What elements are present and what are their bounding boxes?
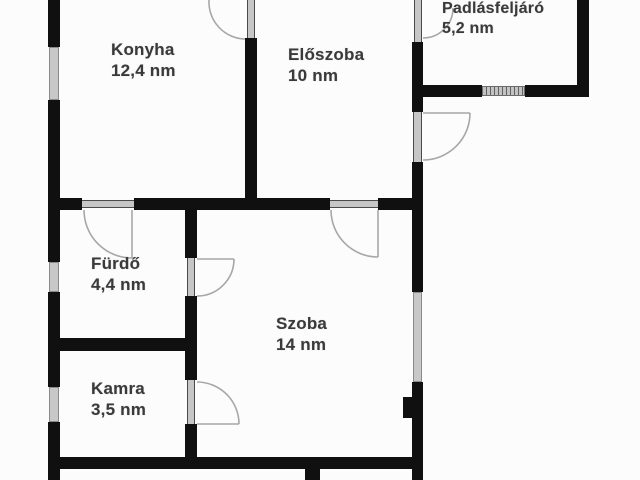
room-label-kamra: Kamra 3,5 nm — [91, 378, 146, 420]
room-label-padlasfeljaro: Padlásfeljáró 5,2 nm — [442, 0, 544, 39]
door-arc-furdo-szoba — [197, 259, 234, 296]
window-furdo-left — [49, 262, 59, 292]
doorway-entrance — [413, 112, 422, 162]
room-label-szoba: Szoba 14 nm — [276, 313, 327, 355]
floor-plan: Konyha 12,4 nm Előszoba 10 nm Padlásfelj… — [0, 0, 640, 480]
room-name-kamra: Kamra — [91, 378, 146, 399]
doorway-szoba — [330, 200, 378, 208]
wall-padlas-right — [577, 0, 589, 97]
room-label-furdo: Fürdő 4,4 nm — [91, 253, 146, 295]
window-szoba-right — [413, 292, 422, 382]
room-area-padlasfeljaro: 5,2 nm — [442, 19, 544, 39]
room-name-padlasfeljaro: Padlásfeljáró — [442, 0, 544, 19]
wall-main-horizontal-mid — [134, 198, 330, 210]
wall-bottom-stub — [305, 469, 320, 480]
room-area-konyha: 12,4 nm — [111, 60, 176, 81]
room-name-konyha: Konyha — [111, 39, 176, 60]
wall-right-mid — [412, 162, 423, 292]
room-label-konyha: Konyha 12,4 nm — [111, 39, 176, 81]
room-area-kamra: 3,5 nm — [91, 399, 146, 420]
doorway-furdo-szoba — [187, 258, 195, 296]
wall-konyha-eloszoba — [245, 38, 257, 210]
room-area-szoba: 14 nm — [276, 334, 327, 355]
window-konyha-left — [49, 47, 59, 100]
room-name-szoba: Szoba — [276, 313, 327, 334]
room-area-eloszoba: 10 nm — [288, 65, 364, 86]
room-label-eloszoba: Előszoba 10 nm — [288, 44, 364, 86]
door-arc-szoba — [331, 210, 378, 257]
doorway-padlasfeljaro — [414, 0, 422, 42]
wall-left-upper — [48, 0, 60, 47]
wall-right-upper — [412, 97, 423, 112]
doorway-furdo — [82, 200, 134, 208]
wall-left-mid — [48, 100, 60, 262]
wall-eloszoba-padlas — [412, 42, 423, 85]
wall-main-horizontal-west — [48, 198, 82, 210]
chimney-block — [403, 397, 412, 418]
door-arc-furdo — [84, 210, 132, 258]
wall-bottom — [48, 457, 423, 469]
wall-padlas-bottom-west — [412, 85, 482, 97]
door-arc-entrance — [423, 113, 470, 160]
window-kamra-left — [49, 387, 59, 422]
room-area-furdo: 4,4 nm — [91, 274, 146, 295]
door-arc-konyha — [209, 0, 245, 39]
wall-furdo-szoba-upper — [185, 210, 197, 258]
wall-left-bottom — [48, 422, 60, 480]
window-padlas-bottom — [482, 86, 525, 96]
room-name-furdo: Fürdő — [91, 253, 146, 274]
doorway-konyha — [247, 0, 255, 38]
wall-furdo-kamra — [48, 338, 197, 351]
door-arc-kamra-szoba — [197, 382, 239, 424]
wall-main-horizontal-east — [378, 198, 423, 210]
doorway-kamra-szoba — [187, 380, 195, 424]
room-name-eloszoba: Előszoba — [288, 44, 364, 65]
